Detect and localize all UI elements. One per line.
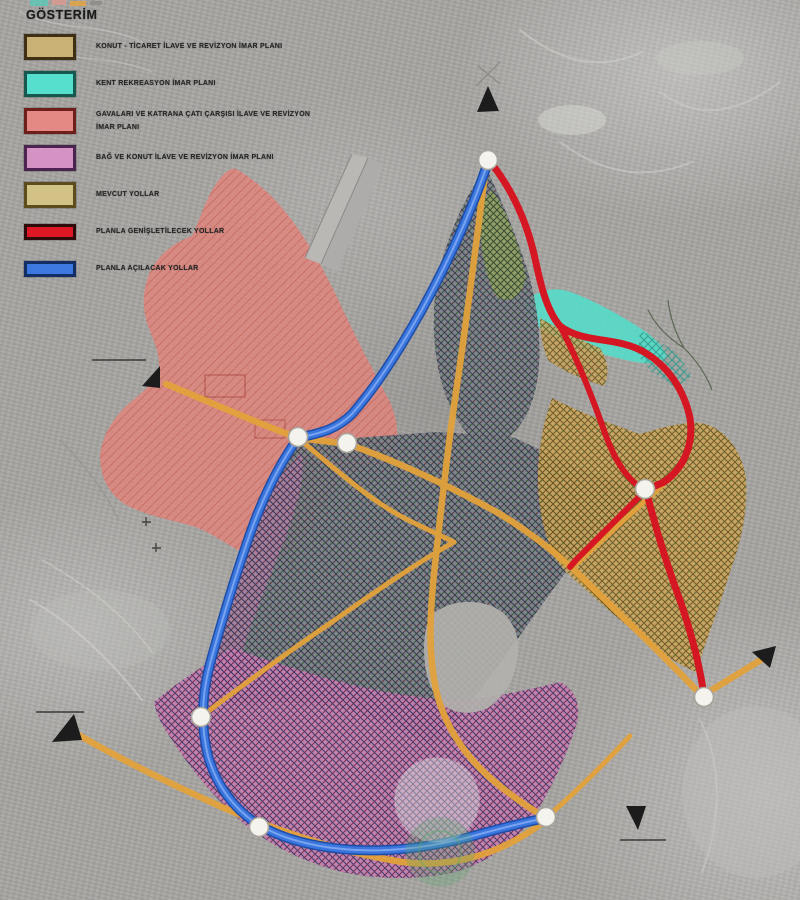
junction-node	[250, 818, 269, 837]
legend-swatch-genisletilecek-yollar	[24, 224, 76, 240]
junction-node	[479, 151, 498, 170]
west-arrow-icon	[142, 366, 160, 388]
junction-node	[338, 434, 357, 453]
north-mark	[476, 62, 500, 86]
junction-node	[695, 688, 714, 707]
junction-node	[192, 708, 211, 727]
junction-node	[289, 428, 308, 447]
southeast-arrow-icon	[626, 806, 646, 830]
legend-item: PLANLA AÇILACAK YOLLAR	[24, 250, 331, 287]
utility-cross-marks	[142, 517, 161, 552]
legend-swatch-acilacak-yollar	[24, 261, 76, 277]
legend-swatch-carsi	[24, 108, 76, 134]
legend-item: MEVCUT YOLLAR	[24, 176, 331, 213]
legend: GÖSTERİM KONUT - TİCARET İLAVE VE REVİZY…	[24, 8, 331, 287]
legend-item: KONUT - TİCARET İLAVE VE REVİZYON İMAR P…	[24, 28, 331, 65]
legend-swatch-bag-konut	[24, 145, 76, 171]
legend-item: PLANLA GENİŞLETİLECEK YOLLAR	[24, 213, 331, 250]
legend-swatch-rekreasyon	[24, 71, 76, 97]
legend-title: GÖSTERİM	[26, 8, 331, 22]
junction-node	[537, 808, 556, 827]
legend-swatch-konut-ticaret	[24, 34, 76, 60]
top-edge-smudge	[30, 0, 102, 6]
legend-item-label: PLANLA GENİŞLETİLECEK YOLLAR	[96, 225, 224, 238]
legend-item-label: BAĞ VE KONUT İLAVE VE REVİZYON İMAR PLAN…	[96, 151, 274, 164]
map-screenshot: GÖSTERİM KONUT - TİCARET İLAVE VE REVİZY…	[0, 0, 800, 900]
legend-item-label: MEVCUT YOLLAR	[96, 188, 159, 201]
junction-node	[636, 480, 655, 499]
fabric-east-tan	[538, 398, 746, 672]
southwest-arrow-icon	[52, 714, 82, 742]
legend-item-label: KENT REKREASYON İMAR PLANI	[96, 77, 216, 90]
legend-item-label: PLANLA AÇILACAK YOLLAR	[96, 262, 198, 275]
legend-item-label: KONUT - TİCARET İLAVE VE REVİZYON İMAR P…	[96, 40, 282, 53]
legend-item-label: GAVALARI VE KATRANA ÇATI ÇARŞISI İLAVE V…	[96, 108, 331, 134]
legend-item: KENT REKREASYON İMAR PLANI	[24, 65, 331, 102]
legend-swatch-mevcut-yollar	[24, 182, 76, 208]
north-arrow-icon	[477, 86, 499, 112]
legend-item: BAĞ VE KONUT İLAVE VE REVİZYON İMAR PLAN…	[24, 139, 331, 176]
legend-item: GAVALARI VE KATRANA ÇATI ÇARŞISI İLAVE V…	[24, 102, 331, 139]
